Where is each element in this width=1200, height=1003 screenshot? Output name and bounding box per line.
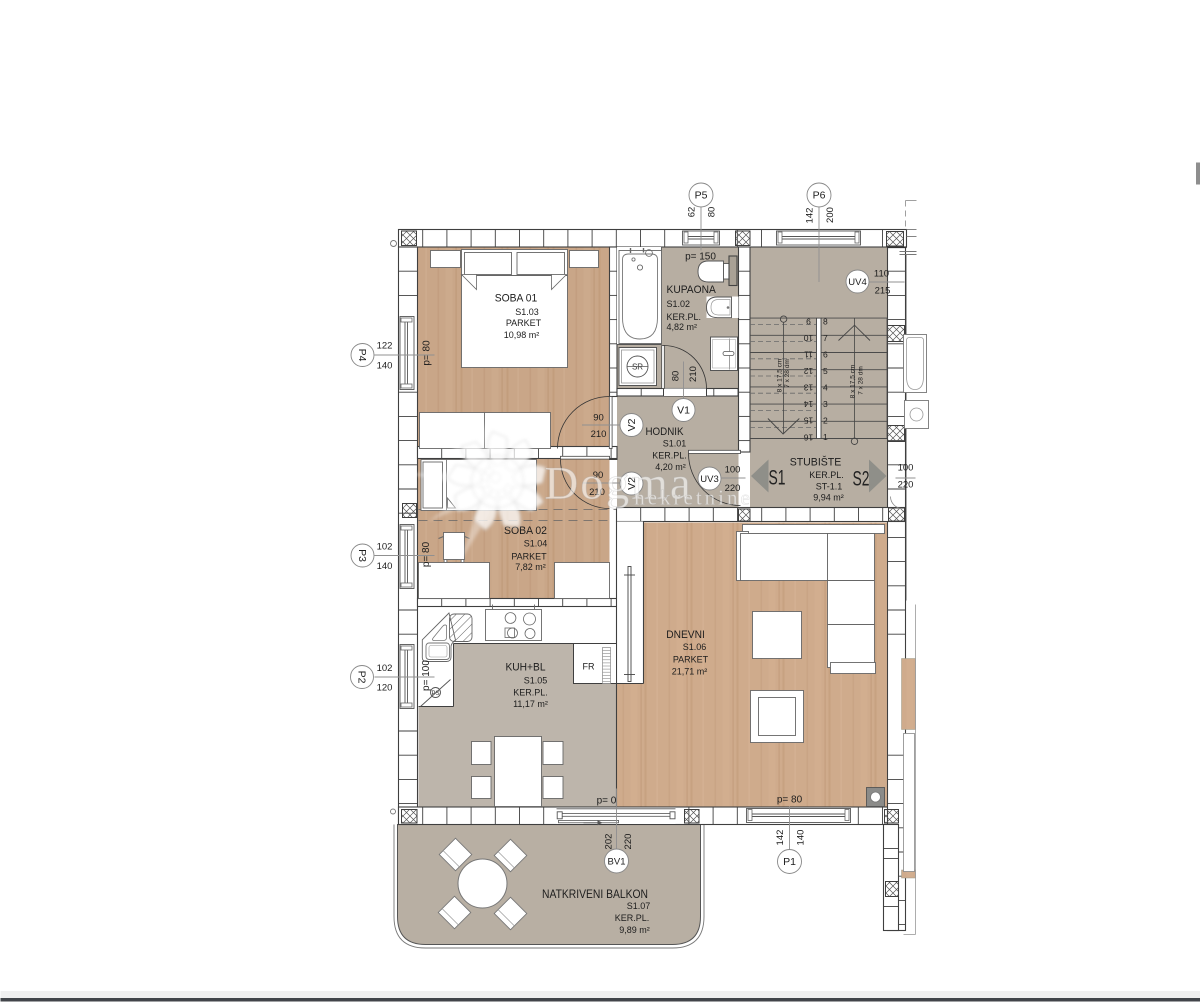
- svg-text:9,89 m²: 9,89 m²: [619, 925, 650, 935]
- svg-text:110: 110: [874, 268, 889, 279]
- svg-text:KUPAONA: KUPAONA: [667, 284, 717, 296]
- svg-text:8: 8: [823, 316, 828, 326]
- svg-text:7 x 28 dm: 7 x 28 dm: [857, 366, 864, 395]
- svg-text:V1: V1: [677, 405, 690, 417]
- svg-text:HODNIK: HODNIK: [646, 426, 685, 438]
- svg-text:120: 120: [377, 682, 393, 693]
- svg-text:5: 5: [823, 366, 828, 376]
- svg-text:S1.06: S1.06: [683, 642, 707, 652]
- svg-text:16: 16: [804, 432, 814, 442]
- svg-text:7 x 28 dm: 7 x 28 dm: [784, 359, 791, 388]
- svg-text:P6: P6: [813, 190, 826, 202]
- svg-text:KER.PL.: KER.PL.: [513, 688, 548, 698]
- svg-text:ST-1.1: ST-1.1: [816, 482, 843, 492]
- svg-text:200: 200: [825, 207, 836, 223]
- svg-text:8 x 17,5 cm: 8 x 17,5 cm: [849, 365, 856, 399]
- svg-text:122: 122: [377, 340, 393, 351]
- svg-text:PARKET: PARKET: [506, 318, 542, 328]
- svg-text:p= 0: p= 0: [597, 796, 617, 807]
- svg-text:202: 202: [603, 834, 614, 850]
- svg-text:210: 210: [688, 366, 699, 382]
- svg-text:STUBIŠTE: STUBIŠTE: [790, 455, 842, 468]
- svg-text:P1: P1: [783, 856, 796, 868]
- svg-text:S1: S1: [769, 466, 786, 489]
- svg-text:p= 150: p= 150: [685, 252, 716, 263]
- svg-text:S1.02: S1.02: [667, 299, 691, 309]
- svg-text:p= 100: p= 100: [421, 660, 432, 691]
- svg-text:142: 142: [804, 208, 815, 224]
- svg-text:4,82 m²: 4,82 m²: [667, 322, 698, 332]
- svg-text:PARKET: PARKET: [673, 655, 709, 665]
- svg-text:220: 220: [623, 834, 634, 850]
- svg-text:NATKRIVENI BALKON: NATKRIVENI BALKON: [542, 889, 648, 901]
- svg-text:P2: P2: [355, 671, 367, 684]
- svg-text:PS: PS: [431, 691, 439, 697]
- svg-text:S1.01: S1.01: [663, 439, 687, 449]
- svg-text:UV4: UV4: [848, 277, 866, 288]
- svg-text:p= 80: p= 80: [421, 541, 432, 567]
- svg-text:220: 220: [898, 479, 914, 490]
- svg-text:215: 215: [875, 285, 891, 296]
- svg-text:15: 15: [804, 416, 814, 426]
- svg-text:140: 140: [377, 561, 393, 572]
- svg-text:100: 100: [898, 462, 914, 473]
- svg-text:p= 80: p= 80: [777, 795, 803, 806]
- svg-text:S1.07: S1.07: [627, 901, 651, 911]
- svg-text:142: 142: [775, 830, 786, 846]
- svg-text:140: 140: [795, 830, 806, 846]
- svg-text:DNEVNI: DNEVNI: [666, 629, 705, 641]
- svg-text:P4: P4: [356, 349, 368, 362]
- svg-text:100: 100: [725, 464, 741, 475]
- svg-text:12: 12: [804, 366, 814, 376]
- svg-text:nekretnine: nekretnine: [634, 486, 753, 510]
- svg-text:6: 6: [823, 349, 828, 359]
- svg-text:KER.PL.: KER.PL.: [615, 913, 650, 923]
- svg-text:BV1: BV1: [608, 856, 626, 867]
- svg-text:2: 2: [823, 416, 828, 426]
- svg-text:210: 210: [591, 429, 607, 440]
- svg-text:PARKET: PARKET: [511, 552, 547, 562]
- svg-text:9,94 m²: 9,94 m²: [813, 493, 844, 503]
- svg-text:62: 62: [686, 207, 697, 218]
- svg-text:10: 10: [804, 333, 814, 343]
- svg-text:KER.PL.: KER.PL.: [667, 312, 702, 322]
- svg-text:3: 3: [823, 399, 828, 409]
- svg-text:14: 14: [804, 399, 814, 409]
- svg-text:1: 1: [823, 432, 828, 442]
- svg-text:102: 102: [377, 541, 393, 552]
- svg-text:p= 80: p= 80: [422, 340, 433, 366]
- svg-text:80: 80: [670, 371, 681, 382]
- svg-text:UV3: UV3: [700, 474, 718, 485]
- svg-text:80: 80: [706, 207, 717, 218]
- svg-text:11: 11: [804, 350, 813, 360]
- svg-text:9: 9: [806, 316, 811, 326]
- svg-text:7: 7: [823, 333, 828, 343]
- svg-text:P3: P3: [356, 549, 368, 562]
- svg-text:FR: FR: [583, 662, 595, 672]
- svg-text:102: 102: [377, 663, 393, 674]
- svg-text:8 x 17,5 cm: 8 x 17,5 cm: [776, 359, 783, 393]
- svg-text:KER.PL.: KER.PL.: [809, 470, 844, 480]
- svg-text:S2: S2: [853, 467, 870, 490]
- svg-text:13: 13: [804, 383, 814, 393]
- svg-text:P5: P5: [695, 190, 708, 202]
- svg-text:11,17 m²: 11,17 m²: [513, 699, 548, 709]
- svg-text:KUH+BL: KUH+BL: [506, 661, 546, 673]
- svg-text:SOBA 01: SOBA 01: [495, 292, 538, 304]
- svg-text:S1.04: S1.04: [524, 539, 548, 549]
- svg-text:90: 90: [593, 412, 604, 423]
- svg-text:S1.03: S1.03: [515, 307, 539, 317]
- svg-text:S1.05: S1.05: [524, 676, 548, 686]
- svg-text:10,98 m²: 10,98 m²: [504, 330, 540, 340]
- svg-text:V2: V2: [626, 418, 638, 431]
- svg-text:4: 4: [823, 383, 828, 393]
- svg-text:7,82 m²: 7,82 m²: [515, 562, 546, 572]
- svg-text:140: 140: [377, 360, 393, 371]
- svg-text:21,71 m²: 21,71 m²: [672, 667, 708, 677]
